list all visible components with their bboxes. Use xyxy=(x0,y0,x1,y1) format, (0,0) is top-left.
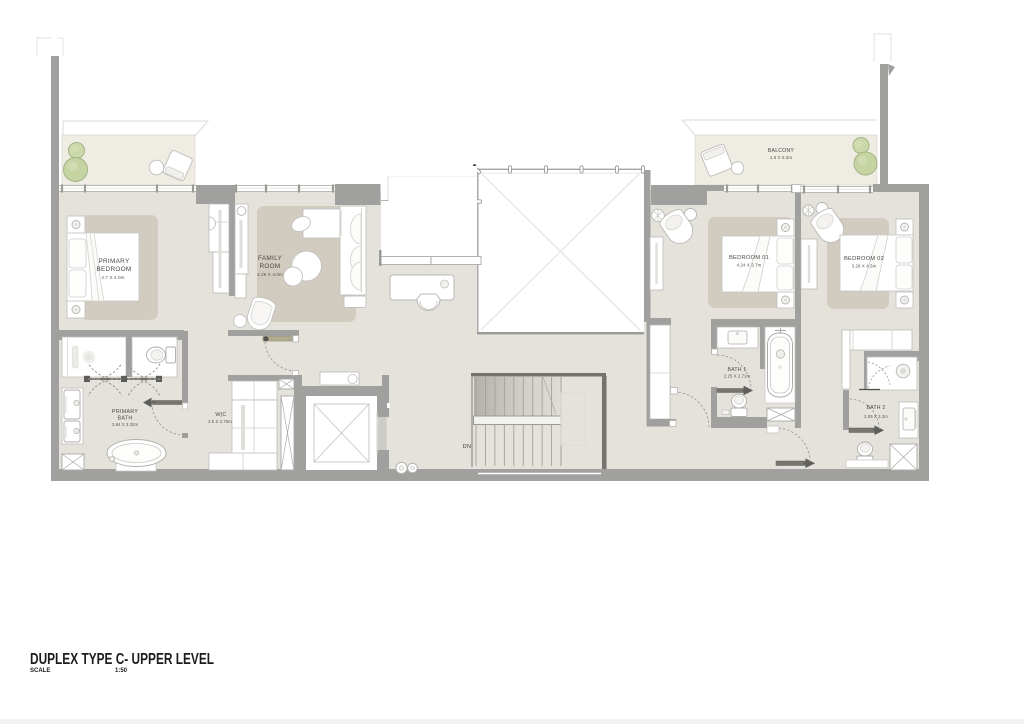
svg-text:2.5 X 2.75m: 2.5 X 2.75m xyxy=(208,419,232,424)
svg-text:1.5 X 5.3m: 1.5 X 5.3m xyxy=(770,155,792,160)
svg-text:3.94 X 3.32m: 3.94 X 3.32m xyxy=(112,422,139,427)
svg-text:SCALE: SCALE xyxy=(30,668,50,674)
svg-text:4.26 X 4.0m: 4.26 X 4.0m xyxy=(257,272,283,277)
svg-text:DUPLEX TYPE C- UPPER LEVEL: DUPLEX TYPE C- UPPER LEVEL xyxy=(30,651,214,668)
svg-text:4.24 X 3.7m: 4.24 X 3.7m xyxy=(737,263,762,268)
svg-text:3.28 X 4.5m: 3.28 X 4.5m xyxy=(852,264,877,269)
svg-text:2.25 X 2.71m: 2.25 X 2.71m xyxy=(724,374,751,379)
svg-text:PRIMARY: PRIMARY xyxy=(98,258,130,265)
svg-text:BATH: BATH xyxy=(118,416,133,422)
svg-text:BEDROOM 01: BEDROOM 01 xyxy=(729,255,769,261)
svg-text:BATH 1: BATH 1 xyxy=(728,367,747,373)
svg-text:PRIMARY: PRIMARY xyxy=(112,409,138,415)
svg-text:BEDROOM: BEDROOM xyxy=(96,266,131,273)
svg-text:1:50: 1:50 xyxy=(115,668,128,674)
svg-text:W|C: W|C xyxy=(215,412,226,418)
svg-text:BATH 2: BATH 2 xyxy=(867,405,886,411)
svg-text:4.7 X 4.0m: 4.7 X 4.0m xyxy=(101,275,124,280)
svg-text:BEDROOM 02: BEDROOM 02 xyxy=(844,256,884,262)
svg-text:DN: DN xyxy=(463,444,472,450)
svg-text:FAMILY: FAMILY xyxy=(258,255,282,262)
svg-text:2.09 X 3.2m: 2.09 X 3.2m xyxy=(864,414,888,419)
svg-text:BALCONY: BALCONY xyxy=(768,148,795,154)
svg-text:ROOM: ROOM xyxy=(259,263,280,270)
